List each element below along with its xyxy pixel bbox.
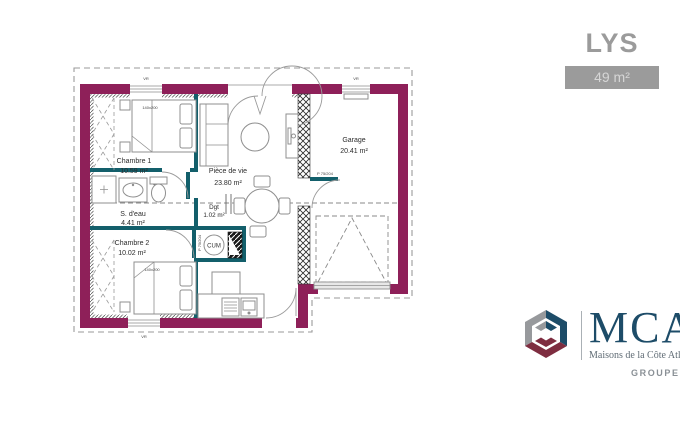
door-chambre2: P 75/204 [166,230,202,258]
group-name: GROUPE HexaOm [631,368,680,378]
tv-unit [286,114,298,158]
water-heater-label: CUM [207,244,221,250]
svg-text:S. d'eau: S. d'eau [120,211,146,218]
svg-text:23.80 m²: 23.80 m² [214,180,242,187]
svg-text:20.41 m²: 20.41 m² [340,148,368,155]
pillow [180,290,192,310]
area-badge: 49 m² [565,66,659,89]
shutter-label: VR [143,76,149,81]
room-garage-label: Garage 20.41 m² [340,137,368,155]
svg-text:4.41 m²: 4.41 m² [121,220,145,227]
kitchen-counter [198,272,264,318]
window-chambre2: VR [128,320,160,339]
living-furniture: CUM [198,104,298,318]
svg-text:10.02 m²: 10.02 m² [118,250,146,257]
model-name: LYS [565,30,659,57]
window-chambre1: VR [130,76,162,92]
technical-closet: CUM [204,232,242,258]
svg-text:1.02 m²: 1.02 m² [203,212,224,219]
mca-cube-icon [517,308,575,366]
sofa [200,104,228,166]
rug [241,123,269,151]
page: { "header": { "model_name": "LYS", "area… [0,0,680,425]
nightstand [120,302,130,312]
svg-text:Pièce de vie: Pièce de vie [209,168,247,175]
wardrobe-chambre2 [92,240,114,312]
pillow [180,266,192,286]
svg-text:Chambre 2: Chambre 2 [115,240,150,247]
door-label: P 75/204 [317,171,334,176]
dishwasher [222,298,239,316]
header: LYS 49 m² [565,30,659,89]
pillow [180,128,192,148]
toilet [150,177,167,202]
nightstand [120,142,130,152]
pillow [180,104,192,124]
window-garage: VR [342,76,370,99]
bed-size-label: 140x200 [144,267,160,272]
bed-size-label: 140x200 [142,105,158,110]
room-sdeau-label: S. d'eau 4.41 m² [120,211,146,227]
room-piecedevie-label: Pièce de vie 23.80 m² [209,168,247,187]
shutter-label: VR [141,334,147,339]
svg-text:Garage: Garage [342,137,365,144]
nightstand [120,100,130,110]
logo-divider [581,311,582,360]
door-label: P 75/204 [197,234,202,251]
garage-separation-wall [298,94,310,284]
wardrobe-chambre1 [92,98,114,170]
shutter-label: VR [353,76,359,81]
room-dgt-label: Dgt 1.02 m² [203,204,224,219]
svg-text:Dgt: Dgt [209,204,219,211]
room-chambre2-label: Chambre 2 10.02 m² [115,240,150,257]
room-chambre1-label: Chambre 1 10.59 m² [117,158,152,175]
svg-text:10.59 m²: 10.59 m² [120,168,148,175]
logo-acronym: MCA [589,308,680,348]
brand-logo: MCA Maisons de la Côte Atlantique GROUPE… [517,308,680,378]
logo-subtitle: Maisons de la Côte Atlantique [589,350,680,361]
svg-text:Chambre 1: Chambre 1 [117,158,152,165]
garage-door [314,216,390,289]
sdeau-fixtures [92,176,167,203]
door-garage-access: P 75/204 [310,171,340,208]
door-french-window [266,288,296,318]
